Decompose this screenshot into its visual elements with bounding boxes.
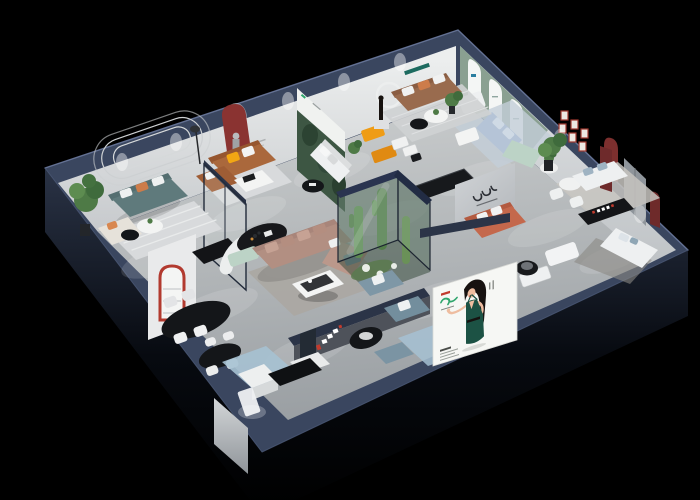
plant-pot <box>544 160 553 171</box>
niche-figurine-head <box>233 133 240 140</box>
spotlight-glow <box>116 153 128 171</box>
table-book <box>309 183 316 186</box>
table-vase <box>308 279 312 283</box>
poster-logo-mark <box>471 74 476 77</box>
table-plant <box>147 218 152 223</box>
spotlight-glow <box>338 73 350 91</box>
framed-picture <box>561 111 568 120</box>
spotlight-glow <box>634 205 646 223</box>
round-black-table <box>410 119 428 130</box>
potted-plant <box>354 140 362 148</box>
plant-foliage <box>82 174 96 188</box>
framed-picture <box>581 129 588 138</box>
framed-picture <box>571 120 578 129</box>
table-plant <box>433 109 439 115</box>
panel-glow <box>238 405 266 419</box>
chair-seat <box>521 262 533 270</box>
vertical-microtext <box>489 282 490 289</box>
plant-pot <box>449 106 455 114</box>
showroom-svg <box>0 0 700 500</box>
white-flower-shrub <box>391 263 397 269</box>
plant-foliage <box>538 143 552 157</box>
table-bottle <box>253 234 257 238</box>
floor-lamp-shade <box>190 126 200 133</box>
plant-foliage <box>553 133 567 147</box>
framed-picture <box>569 133 576 142</box>
black-figurine <box>379 100 383 122</box>
table-tray <box>359 332 373 340</box>
spotlight-glow <box>394 53 406 71</box>
spotlight-glow <box>282 92 294 110</box>
poster-microtext <box>492 96 498 97</box>
plant-pot <box>80 224 90 236</box>
framed-picture <box>579 142 586 151</box>
potted-plant <box>453 91 463 101</box>
mural-tree <box>302 124 318 146</box>
round-black-side-table <box>121 230 139 241</box>
spotlight-glow <box>170 133 182 151</box>
table-bottle <box>257 231 260 234</box>
showroom-render <box>0 0 700 500</box>
white-flower-shrub <box>362 264 370 272</box>
figurine-plinth <box>374 120 389 129</box>
shelf-line <box>163 288 181 290</box>
table-decor <box>251 238 254 241</box>
plant-foliage <box>69 183 85 199</box>
figurine-head <box>378 95 383 100</box>
vertical-microtext <box>493 280 494 289</box>
